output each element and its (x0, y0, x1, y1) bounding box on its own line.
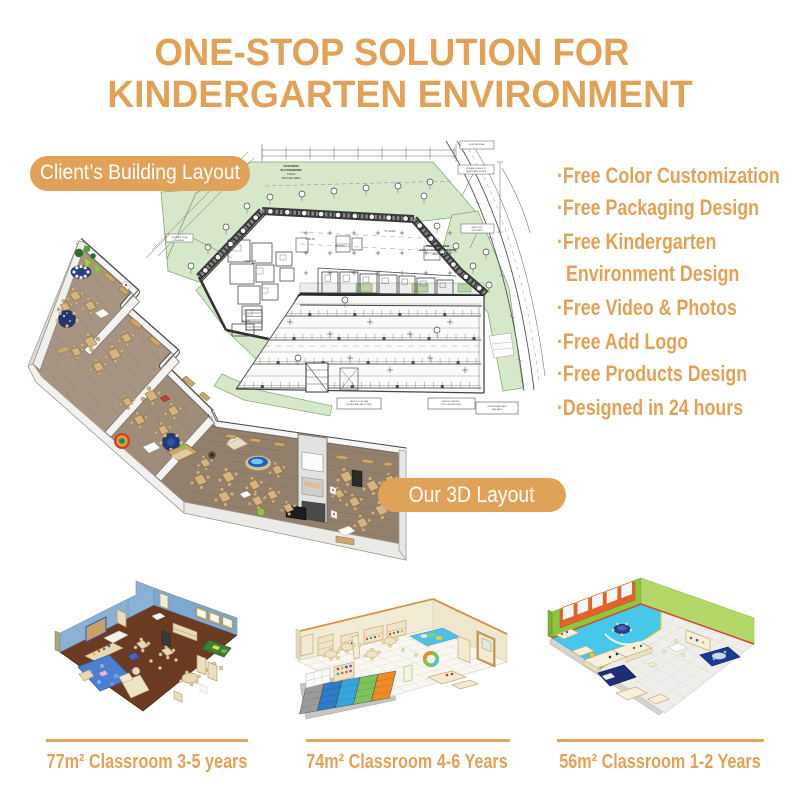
svg-text:PLAYGROUND: PLAYGROUND (280, 168, 302, 172)
svg-text:PATH TO LETTER: PATH TO LETTER (350, 400, 368, 403)
svg-text:STAFF RM: STAFF RM (244, 260, 256, 263)
svg-text:ST GILES: ST GILES (385, 230, 396, 233)
svg-text:KITCHEN: KITCHEN (335, 245, 346, 248)
svg-text:RL 21.80: RL 21.80 (305, 238, 315, 241)
svg-text:REMOVED: REMOVED (175, 240, 185, 242)
svg-text:EXISTING ROAD: EXISTING ROAD (469, 143, 485, 146)
svg-text:FOOTPATH: FOOTPATH (472, 229, 483, 232)
svg-text:AND PATH: AND PATH (492, 408, 502, 411)
svg-text:EXIT CROSSOVER: EXIT CROSSOVER (441, 404, 461, 406)
svg-text:FFL 21.75: FFL 21.75 (433, 254, 444, 256)
svg-text:NEW CONC: NEW CONC (471, 227, 483, 229)
svg-text:BOXES AND BIN STORE: BOXES AND BIN STORE (346, 403, 372, 406)
svg-text:VEHICLE ENTRY /: VEHICLE ENTRY / (442, 401, 461, 403)
svg-text:PEDESTRIAN GATE: PEDESTRIAN GATE (488, 405, 507, 408)
svg-text:74.6m2: 74.6m2 (287, 173, 296, 176)
svg-text:PLANT: PLANT (242, 320, 250, 323)
svg-text:EX TREES TO BE: EX TREES TO BE (172, 237, 188, 239)
svg-text:SOFT FALL AREA: SOFT FALL AREA (282, 177, 301, 180)
svg-text:SITE AND LEVELS TO: SITE AND LEVELS TO (466, 167, 487, 170)
svg-text:EARLY LEARNING CENTRE: EARLY LEARNING CENTRE (420, 248, 457, 252)
svg-text:LANDSCAPE WORKS: LANDSCAPE WORKS (466, 170, 487, 173)
